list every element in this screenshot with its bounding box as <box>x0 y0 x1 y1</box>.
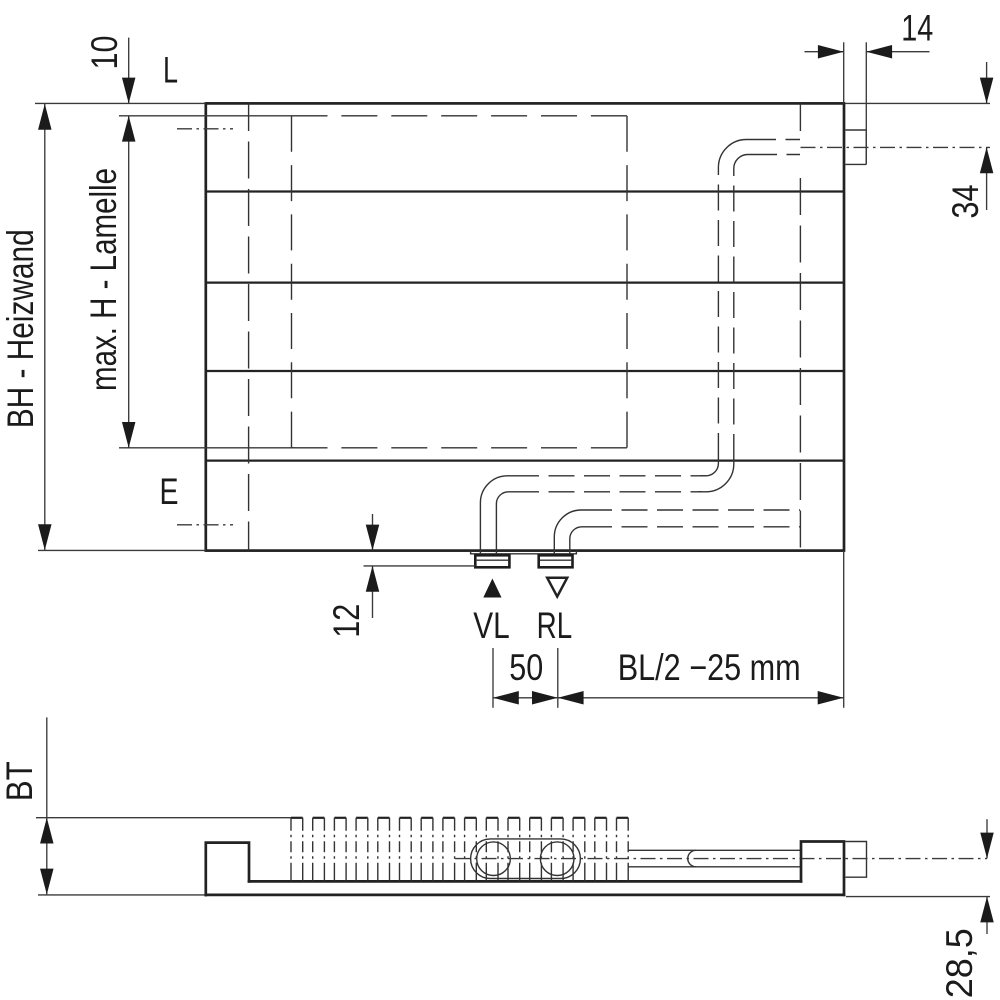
svg-text:L: L <box>163 50 178 91</box>
svg-text:50: 50 <box>509 647 543 688</box>
svg-text:14: 14 <box>901 8 933 49</box>
svg-text:10: 10 <box>84 36 125 70</box>
svg-text:RL: RL <box>537 605 573 646</box>
svg-text:BT: BT <box>0 761 40 801</box>
svg-text:VL: VL <box>473 605 510 646</box>
svg-text:max. H - Lamelle: max. H - Lamelle <box>83 168 124 391</box>
svg-text:BH - Heizwand: BH - Heizwand <box>0 229 41 428</box>
svg-text:12: 12 <box>326 604 367 638</box>
svg-text:E: E <box>160 471 179 512</box>
svg-text:BL/2 −25 mm: BL/2 −25 mm <box>618 647 801 688</box>
svg-text:34: 34 <box>945 185 986 219</box>
svg-text:28,5: 28,5 <box>939 928 980 998</box>
